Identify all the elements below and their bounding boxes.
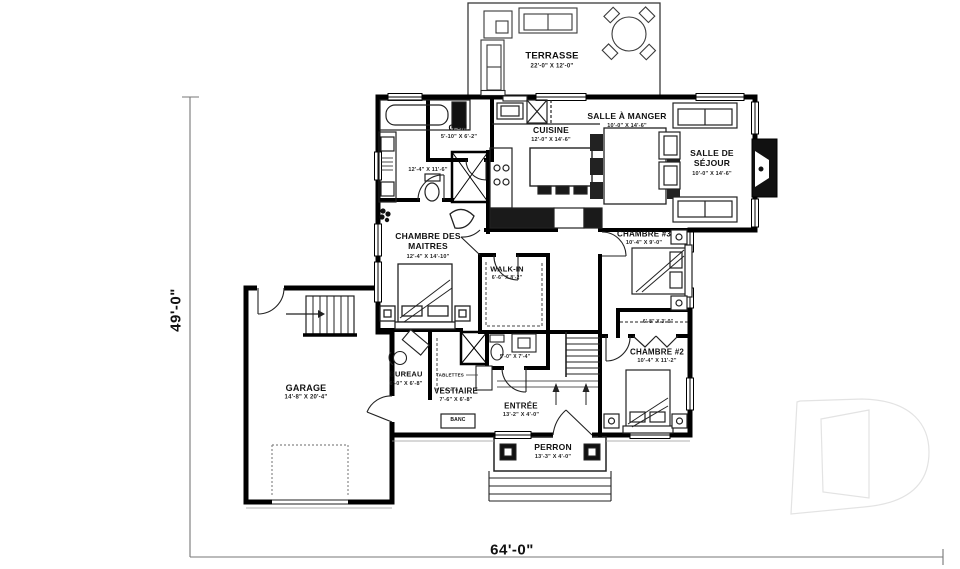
floor-plan-sheet: TERRASSE 22'-0" X 12'-0" G.-M. 5'-10" X … <box>0 0 960 569</box>
room-label-cuisine: CUISINE <box>533 126 569 136</box>
room-dims-salle-de-sejour: 10'-0" X 14'-6" <box>692 171 732 177</box>
room-dims-terrasse: 22'-0" X 12'-0" <box>531 64 574 71</box>
stool-icon <box>538 186 551 194</box>
room-dims-chambre-des-maitres: 12'-4" X 14'-10" <box>407 254 450 260</box>
room-label-salle-de-sejour: SALLE DE SÉJOUR <box>681 149 743 169</box>
annotation-banc: BANC <box>450 418 465 424</box>
room-label-chambre-3: CHAMBRE #3 <box>617 229 671 238</box>
room-label-chambre-des-maitres: CHAMBRE DES MAITRES <box>387 232 469 252</box>
room-label-chambre-2: CHAMBRE #2 <box>630 347 684 356</box>
room-dims-salle-a-manger: 10'-0" X 14'-6" <box>607 123 647 129</box>
overall-width-dimension: 64'-0" <box>490 541 534 558</box>
room-label-garde-manger: G.-M. <box>449 123 470 132</box>
room-label-walk-in: WALK-IN <box>490 266 523 275</box>
room-dims-walk-in: 6'-6" X 8'-2" <box>492 276 522 282</box>
room-dims-garde-manger: 5'-10" X 6'-2" <box>441 134 477 140</box>
desk-chair-icon <box>394 352 407 365</box>
room-dims-salle-de-bain: 12'-4" X 11'-6" <box>408 167 447 173</box>
room-dims-chambre-3: 10'-4" X 9'-0" <box>626 240 662 246</box>
watermark-d-logo <box>791 399 929 514</box>
annotation-tablettes: TABLETTES <box>436 372 464 377</box>
shelf-unit <box>476 366 492 390</box>
room-label-perron: PERRON <box>534 443 572 453</box>
room-dims-bureau: 6'-0" X 6'-8" <box>389 381 422 387</box>
room-dims-perron: 13'-3" X 4'-0" <box>535 454 571 460</box>
room-label-garage: GARAGE <box>286 383 327 393</box>
island <box>530 148 592 186</box>
room-dims-cuisine: 12'-0" X 14'-6" <box>531 137 571 143</box>
overall-height-dimension: 49'-0" <box>167 288 184 332</box>
room-dims-garage: 14'-8" X 20'-4" <box>285 395 328 402</box>
stool-icon <box>556 186 569 194</box>
room-dims-entree: 13'-2" X 4'-0" <box>503 412 539 418</box>
room-dims-vestiaire: 7'-6" X 6'-8" <box>439 397 472 403</box>
stool-icon <box>574 186 587 194</box>
toilet-icon <box>490 335 504 342</box>
dining-table <box>604 128 666 204</box>
room-label-bureau: BUREAU <box>389 371 422 380</box>
sink-icon <box>518 338 530 348</box>
room-label-terrasse: TERRASSE <box>525 52 578 63</box>
room-label-entree: ENTRÉE <box>504 401 538 410</box>
fireplace-icon <box>752 139 777 197</box>
counter-run <box>490 208 554 228</box>
room-dims-chambre-2: 10'-4" X 11'-2" <box>637 358 676 364</box>
room-dims-penderie: 6'-8" X 3'-0" <box>643 320 673 326</box>
room-dims-salle-eau: 5'-0" X 7'-4" <box>500 355 530 361</box>
floor-plan-drawing <box>0 0 960 569</box>
round-table-icon <box>612 17 646 51</box>
room-label-salle-a-manger: SALLE À MANGER <box>587 112 666 122</box>
dishwasher-icon <box>554 208 584 228</box>
room-label-vestiaire: VESTIAIRE <box>434 386 478 395</box>
